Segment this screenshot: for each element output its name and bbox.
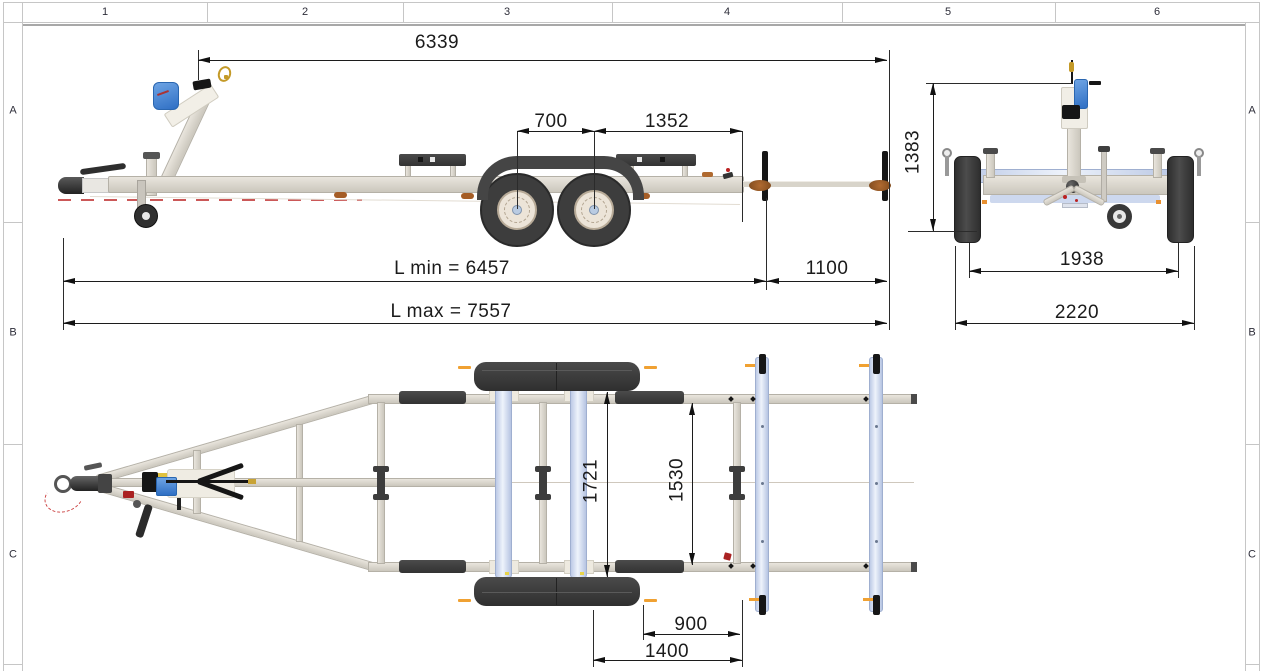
orange-mark-4 [644, 599, 657, 602]
plank1-bolt-3 [761, 540, 764, 543]
arrow-1400-right [730, 657, 742, 663]
bunk-pad-top-1 [399, 391, 466, 404]
plank1-bolt-1 [761, 425, 764, 428]
arrow-900-right [728, 631, 740, 637]
plan-handle-knob [133, 500, 141, 508]
bunk-pad-bottom-1 [399, 560, 466, 573]
orange-mark-1 [458, 366, 471, 369]
plan-black-tick [177, 498, 181, 510]
arrow-1721-top [604, 392, 610, 404]
plan-roller2-waist [539, 470, 547, 496]
plank-orange-4 [863, 598, 873, 601]
dim-frame-outer-width-label: 1721 [582, 459, 601, 503]
axle-yellow-mark-1 [505, 572, 509, 575]
rail-end-tip-bottom [911, 562, 917, 572]
dim-frame-inner-width-label: 1530 [668, 458, 687, 502]
plan-red-chip [123, 491, 134, 498]
plank-orange-2 [859, 364, 869, 367]
plan-roller3-waist [733, 470, 741, 496]
plank-orange-1 [745, 364, 755, 367]
plan-coupler-collar [98, 474, 112, 493]
dimline-1721 [607, 392, 608, 577]
plank1-tip-bottom [759, 595, 766, 615]
plank2-tip-top [873, 354, 880, 374]
ext-900-1400-right [742, 600, 743, 667]
plan-wheels-top [474, 362, 640, 391]
arrow-1400-left [593, 657, 605, 663]
plan-crank-gold-tip [248, 479, 256, 484]
plank-orange-3 [749, 598, 759, 601]
plank2-bolt-3 [875, 540, 878, 543]
bunk-pad-bottom-2 [615, 560, 684, 573]
arrow-900-left [643, 631, 655, 637]
plank2-tip-bottom [873, 595, 880, 615]
arrow-1530-top [689, 403, 695, 415]
arrow-1721-bottom [604, 565, 610, 577]
plank1-tip-top [759, 354, 766, 374]
rail-end-tip-top [911, 394, 917, 404]
dim-rear-offset-label: 900 [674, 615, 707, 634]
plan-coupler-latch [84, 462, 103, 471]
plan-roller3-cap-bottom [729, 494, 745, 500]
plank2-bolt-1 [875, 425, 878, 428]
plan-wheels-top-seam [556, 363, 557, 390]
plan-roller1-cap-bottom [373, 494, 389, 500]
plan-winch-yellow-chip [158, 473, 167, 477]
drawing-sheet: 1 2 3 4 5 6 A B C A B C [0, 0, 1268, 671]
orange-mark-3 [458, 599, 471, 602]
axle-yellow-mark-2 [580, 572, 584, 575]
dimline-1530 [692, 403, 693, 565]
top-view: 1721 1530 900 1400 [0, 0, 1268, 671]
plan-wheels-top-tread [482, 370, 632, 371]
plank2-bolt-2 [875, 482, 878, 485]
bunk-pad-top-2 [615, 391, 684, 404]
plan-roller2-cap-bottom [535, 494, 551, 500]
dim-rear-section-length-label: 1400 [645, 642, 689, 661]
plan-red-mark [723, 552, 732, 561]
plank1-bolt-2 [761, 482, 764, 485]
orange-mark-2 [644, 366, 657, 369]
plan-wheels-bottom-tread [482, 592, 632, 593]
arrow-1530-bottom [689, 553, 695, 565]
axle-front [495, 387, 512, 578]
plan-centerline [504, 482, 914, 483]
plan-handle [135, 504, 153, 539]
plan-roller1-waist [377, 470, 385, 496]
